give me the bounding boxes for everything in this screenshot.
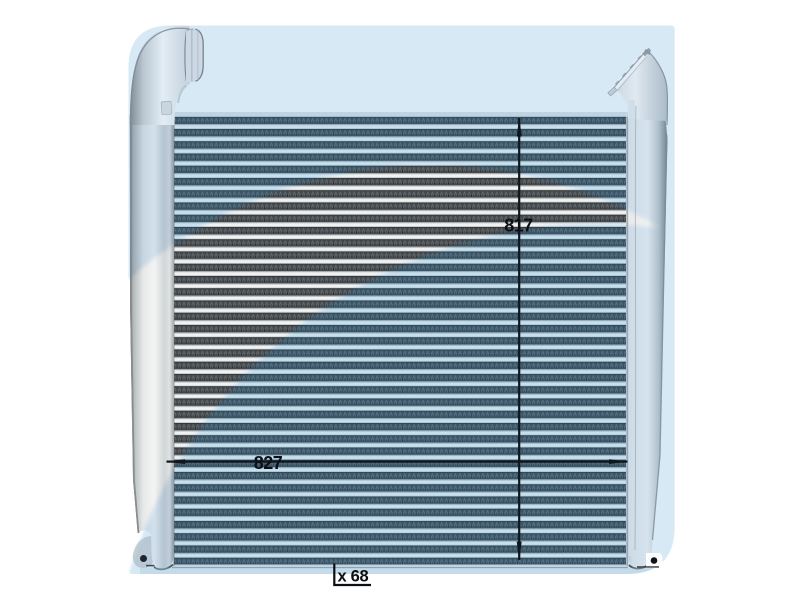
svg-text:817: 817 [504, 216, 533, 236]
svg-text:x 68: x 68 [338, 568, 369, 586]
svg-text:827: 827 [254, 453, 283, 473]
